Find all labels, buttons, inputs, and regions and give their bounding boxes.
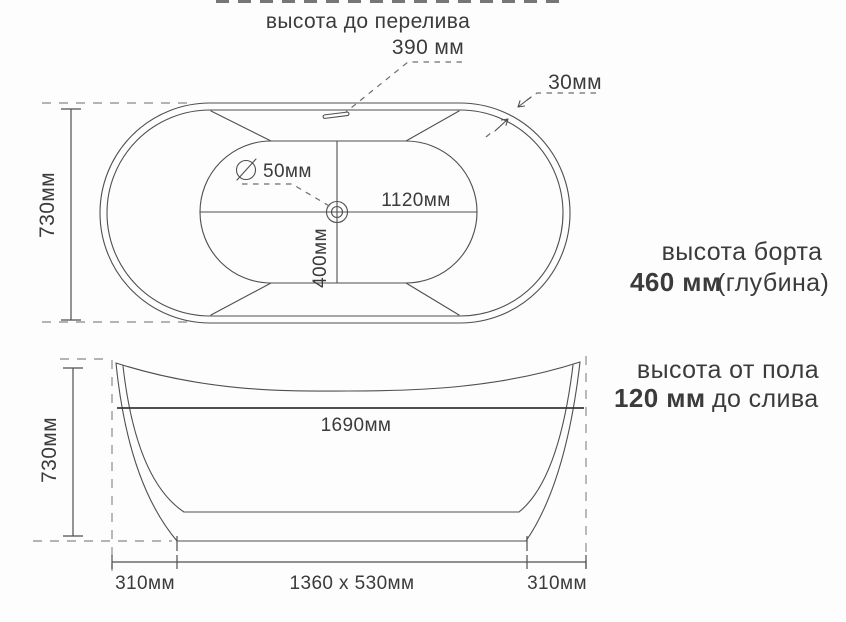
bathtub-dimension-drawing: высота до перелива 390 мм 30мм 50мм 1120… [0,0,846,622]
left-inner-wall [123,366,184,512]
inner-length-label: 1120мм [381,190,450,211]
floor-height-value: 120 мм [614,383,705,413]
overall-length-label: 1690мм [321,415,392,436]
overflow-slot [323,112,349,119]
base-size-label: 1360 x 530мм [290,573,415,594]
outer-rim-outline [100,103,570,323]
corner-line-top-left [211,111,271,141]
diameter-icon [237,159,257,180]
base-dimension-chain: 310мм 1360 x 530мм 310мм [112,356,587,594]
wall-thickness-arrow-inner [486,119,508,137]
rim-profile-curve [116,362,580,391]
overflow-leader-line [346,62,462,112]
base-right-offset-label: 310мм [527,573,587,594]
rim-height-suffix: (глубина) [717,269,829,297]
top-view: высота до перелива 390 мм 30мм 50мм 1120… [36,10,602,323]
overall-width-label: 730мм [36,172,59,238]
wall-thickness-leader [523,93,596,103]
drawing-svg: высота до перелива 390 мм 30мм 50мм 1120… [0,0,846,622]
floor-height-suffix: до слива [712,385,819,413]
wall-thickness-arrow-outer [518,97,531,107]
drain-leader-line [242,184,331,207]
drain-diameter-label: 50мм [263,161,312,182]
rim-height-annotation: высота борта 460 мм (глубина) [630,238,829,297]
overflow-height-label: высота до перелива [266,10,470,33]
overall-height-dimension: 730мм [33,359,172,541]
corner-line-top-right [406,111,459,141]
floor-height-label: высота от пола [637,356,819,384]
floor-height-annotation: высота от пола 120 мм до слива [614,356,819,413]
wall-thickness-label: 30мм [548,71,602,94]
inner-width-label: 400мм [310,228,331,288]
overflow-height-value: 390 мм [392,36,464,59]
side-view: 1690мм 730мм 310мм 1360 x 530мм 310мм [33,356,587,594]
left-outer-wall [116,363,177,541]
rim-height-value: 460 мм [630,267,721,297]
corner-line-bottom-right [406,283,459,315]
right-outer-wall [526,362,580,541]
overall-width-dimension: 730мм [36,103,188,322]
base-left-offset-label: 310мм [115,573,175,594]
overall-height-label: 730мм [38,417,61,483]
corner-line-bottom-left [211,283,271,315]
right-inner-wall [519,365,573,512]
rim-height-label: высота борта [662,238,823,266]
